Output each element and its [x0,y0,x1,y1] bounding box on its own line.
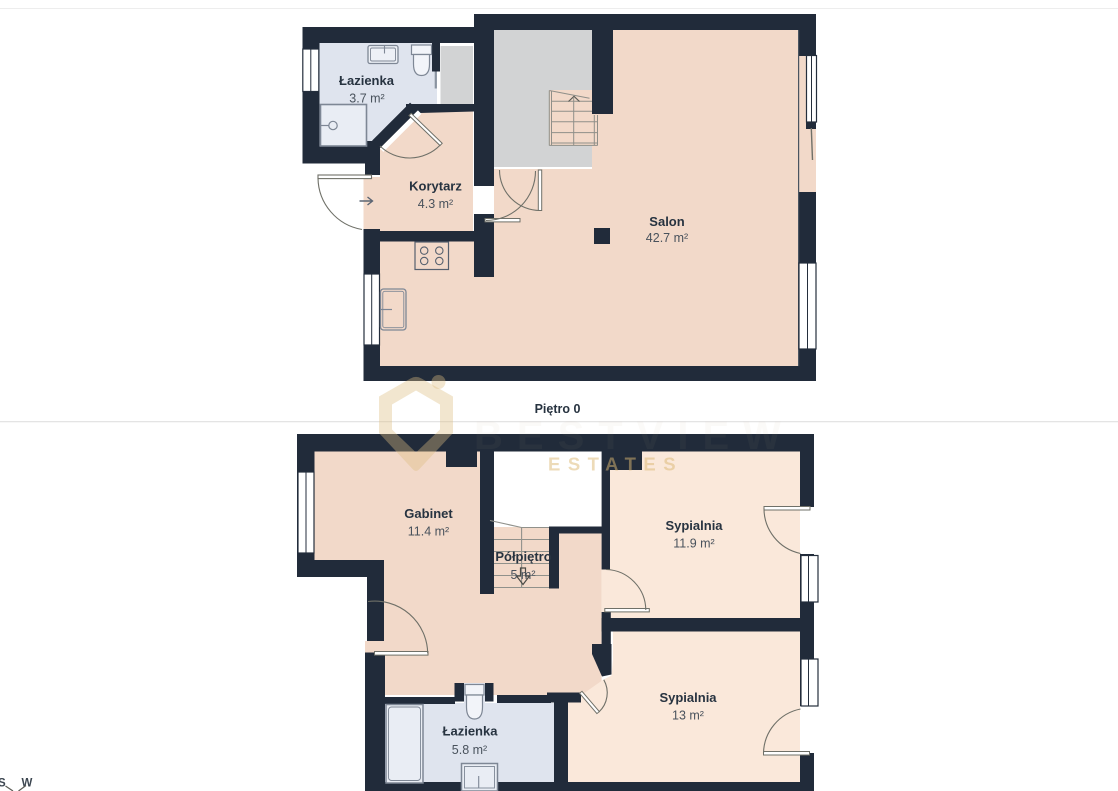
svg-text:11.4 m²: 11.4 m² [408,525,449,539]
svg-text:Sypialnia: Sypialnia [665,518,723,533]
svg-text:4.3 m²: 4.3 m² [418,197,453,211]
svg-text:Łazienka: Łazienka [339,73,395,88]
svg-text:42.7 m²: 42.7 m² [646,231,688,245]
svg-text:11.9 m²: 11.9 m² [673,537,714,551]
svg-text:Półpiętro: Półpiętro [495,549,551,564]
svg-text:Sypialnia: Sypialnia [659,690,717,705]
svg-text:Gabinet: Gabinet [404,506,453,521]
svg-text:5 m²: 5 m² [511,568,536,582]
svg-text:5.8 m²: 5.8 m² [452,743,487,757]
svg-text:S: S [0,778,6,790]
svg-text:13 m²: 13 m² [672,709,704,723]
svg-text:Salon: Salon [649,214,684,229]
svg-text:Korytarz: Korytarz [409,179,462,194]
svg-text:Łazienka: Łazienka [443,724,499,739]
svg-text:3.7 m²: 3.7 m² [349,92,384,106]
svg-text:BESTVIEW: BESTVIEW [474,414,795,458]
